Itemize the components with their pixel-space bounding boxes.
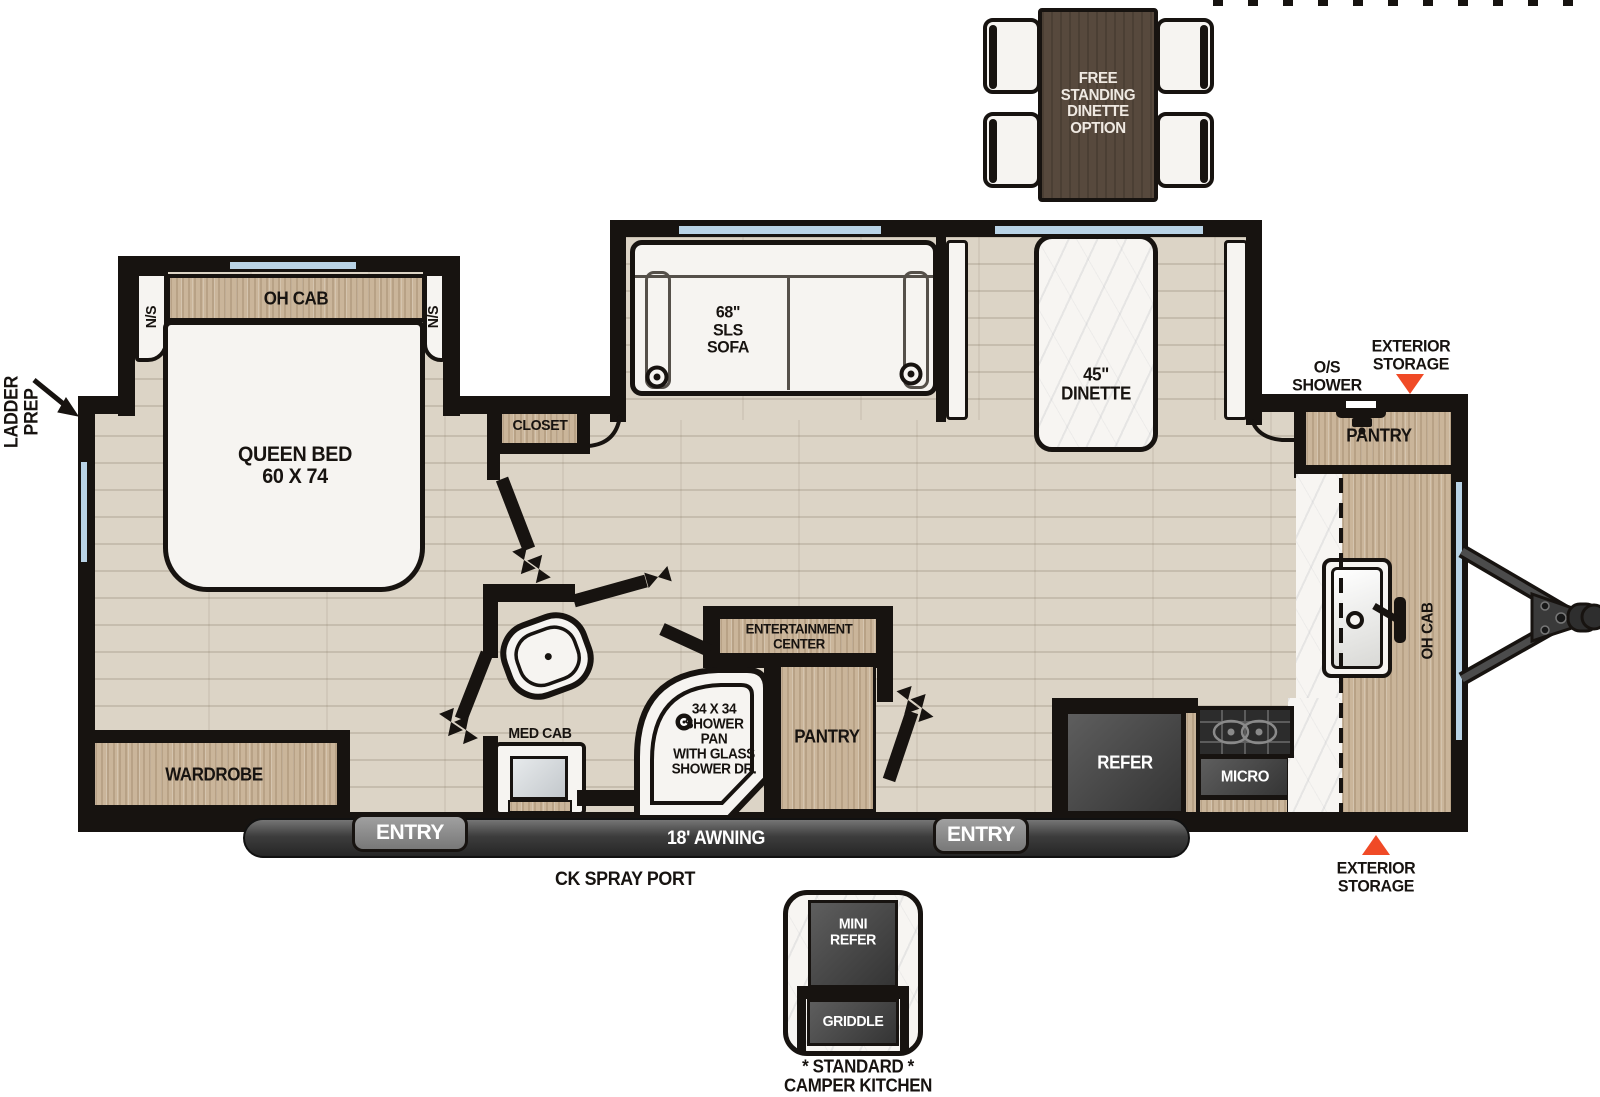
entry-door-left: ENTRY xyxy=(352,814,468,852)
hitch xyxy=(1462,551,1600,679)
dinette-bench-right xyxy=(1224,240,1248,420)
closet-label: CLOSET xyxy=(513,418,568,434)
dinette-chair xyxy=(1156,18,1214,94)
bath-wall-left-lower xyxy=(483,736,498,816)
wall-top-right xyxy=(1256,394,1468,412)
kitchen-sink-basin xyxy=(1331,567,1383,669)
med-cab-label: MED CAB xyxy=(508,726,571,742)
ns-left-label: N/S xyxy=(144,306,160,328)
sofa-back-line xyxy=(635,275,933,278)
pantry-mid-left-wall xyxy=(764,656,778,814)
bath-vanity xyxy=(494,742,586,816)
os-shower-label: O/S SHOWER xyxy=(1292,358,1362,393)
hitch-jack xyxy=(1532,594,1578,641)
chair-back xyxy=(1200,25,1208,89)
window-bedroom-slide xyxy=(228,260,358,271)
bath-wall-low xyxy=(577,790,635,806)
oh-cab-kitchen-label: OH CAB xyxy=(1421,602,1438,659)
ns-right-label: N/S xyxy=(426,306,442,328)
entertainment-right-wall xyxy=(877,610,893,702)
entry-right-label: ENTRY xyxy=(947,823,1015,847)
front-counter-marble-corner xyxy=(1288,698,1342,814)
sofa-slide-wall-left xyxy=(610,220,626,422)
exterior-storage-marker-bottom xyxy=(1362,835,1390,855)
closet-left-wall xyxy=(487,396,500,480)
dinette-chair xyxy=(1156,112,1214,188)
chair-back xyxy=(989,25,997,89)
window-front-wall xyxy=(1454,480,1464,742)
entertainment-center-label: ENTERTAINMENT CENTER xyxy=(746,621,853,650)
griddle-label: GRIDDLE xyxy=(823,1014,884,1030)
camper-kitchen-caption: * STANDARD * CAMPER KITCHEN xyxy=(784,1057,932,1094)
exterior-storage-marker-top xyxy=(1396,374,1424,394)
refer-label: REFER xyxy=(1097,754,1152,773)
dinette-chair xyxy=(983,112,1041,188)
hitch-coupler xyxy=(1568,604,1598,631)
window-dinette-slide xyxy=(993,224,1205,236)
pantry-mid-label: PANTRY xyxy=(794,728,859,747)
refer-left-wall xyxy=(1052,698,1065,816)
ladder-prep-label: LADDER PREP xyxy=(2,376,42,448)
window-left-wall xyxy=(79,460,89,564)
bath-wall-left-upper xyxy=(483,584,498,658)
dinette-chair xyxy=(983,18,1041,94)
sofa xyxy=(630,240,938,396)
ck-spray-port-label: CK SPRAY PORT xyxy=(555,870,695,890)
dinette-label: 45" DINETTE xyxy=(1061,365,1131,402)
floorplan-stage: ENTRY ENTRY LADDER PREP OH CAB N/S N/S Q… xyxy=(0,0,1600,1097)
kitchen-sink xyxy=(1322,558,1392,678)
sofa-label: 68" SLS SOFA xyxy=(707,303,749,356)
queen-bed-label: QUEEN BED 60 X 74 xyxy=(238,444,352,488)
chair-back xyxy=(989,119,997,183)
dinette-table xyxy=(1034,234,1158,452)
camper-kitchen-rail-right xyxy=(900,999,909,1051)
window-sofa-slide xyxy=(677,224,883,236)
shower-pan-label: 34 X 34 SHOWER PAN WITH GLASS SHOWER DR. xyxy=(672,702,757,777)
bed-slide-wall-left xyxy=(118,256,135,416)
awning-label: 18' AWNING xyxy=(667,829,765,849)
exterior-storage-top-label: EXTERIOR STORAGE xyxy=(1372,337,1451,372)
refer-top-wall xyxy=(1052,698,1198,711)
sofa-armrest-right xyxy=(903,271,929,389)
mini-refer-label: MINI REFER xyxy=(830,916,876,947)
entry-left-label: ENTRY xyxy=(376,821,444,845)
sofa-dinette-divider-wall xyxy=(936,236,946,422)
free-standing-dinette-label: FREE STANDING DINETTE OPTION xyxy=(1061,71,1135,138)
dinette-bench-left xyxy=(946,240,968,420)
vanity-mirror xyxy=(510,756,568,800)
wardrobe-label: WARDROBE xyxy=(165,766,263,785)
refer-side-cabinet xyxy=(1184,711,1198,814)
oh-cab-bed-label: OH CAB xyxy=(264,290,328,309)
camper-kitchen-bar xyxy=(797,986,909,999)
chair-back xyxy=(1200,119,1208,183)
sofa-armrest-left xyxy=(645,271,671,389)
camper-kitchen-rail-left xyxy=(797,999,806,1051)
bed-slide-wall-right xyxy=(443,256,460,416)
micro-label: MICRO xyxy=(1221,770,1269,787)
pantry-front-label: PANTRY xyxy=(1346,427,1411,446)
wall-top-mid xyxy=(455,396,620,414)
exterior-storage-bottom-label: EXTERIOR STORAGE xyxy=(1337,859,1416,894)
sofa-cushion-divider xyxy=(787,278,790,390)
entry-door-right: ENTRY xyxy=(933,816,1029,854)
